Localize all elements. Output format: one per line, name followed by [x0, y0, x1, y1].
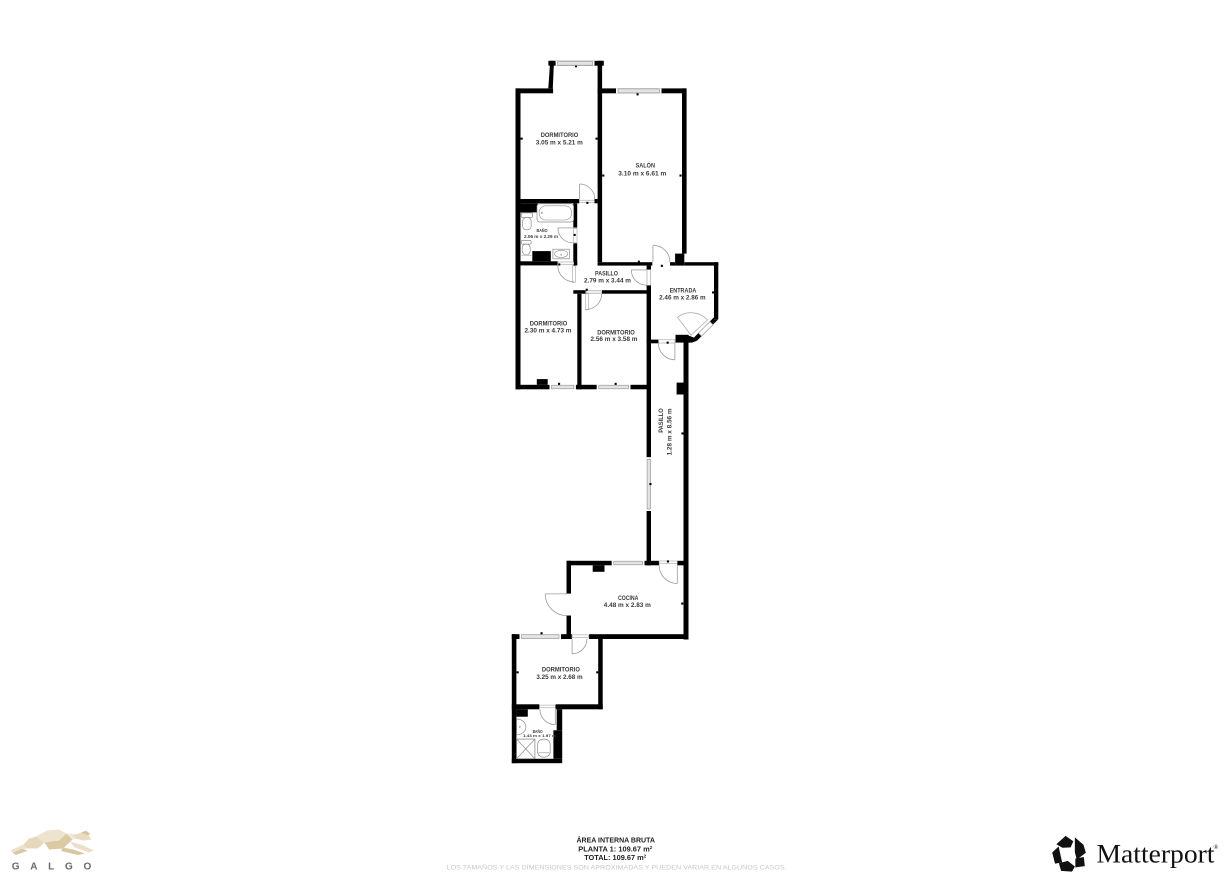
svg-text:1.43 m x 1.97 m: 1.43 m x 1.97 m	[523, 733, 556, 738]
svg-text:TOTAL: 109.67 m2: TOTAL: 109.67 m2	[584, 853, 646, 862]
svg-text:PASILLO: PASILLO	[658, 408, 665, 433]
svg-text:3.05 m x 5.21 m: 3.05 m x 5.21 m	[536, 139, 583, 146]
svg-text:2.56 m x 3.58 m: 2.56 m x 3.58 m	[591, 336, 638, 343]
svg-text:Matterport: Matterport	[1097, 839, 1216, 869]
svg-text:ENTRADA: ENTRADA	[670, 288, 697, 295]
svg-text:LOS TAMAÑOS Y LAS DIMENSIONES: LOS TAMAÑOS Y LAS DIMENSIONES SON APROXI…	[447, 862, 787, 871]
svg-text:DORMITORIO: DORMITORIO	[542, 667, 580, 674]
svg-text:2.06 m x 2.29 m: 2.06 m x 2.29 m	[524, 234, 558, 239]
svg-text:2.30 m x 4.73 m: 2.30 m x 4.73 m	[525, 328, 572, 335]
svg-text:2.79 m x 3.44 m: 2.79 m x 3.44 m	[584, 278, 631, 285]
svg-text:4.48 m x 2.83 m: 4.48 m x 2.83 m	[604, 602, 651, 609]
svg-text:SALÓN: SALÓN	[636, 161, 656, 170]
svg-text:3.25 m x 2.68 m: 3.25 m x 2.68 m	[536, 674, 583, 681]
svg-text:BAÑO: BAÑO	[537, 227, 548, 233]
svg-text:1.28 m x 8.56 m: 1.28 m x 8.56 m	[666, 408, 673, 455]
svg-text:PASILLO: PASILLO	[595, 271, 618, 278]
svg-text:COCINA: COCINA	[618, 595, 639, 602]
svg-text:3.10 m x 6.61 m: 3.10 m x 6.61 m	[618, 170, 666, 177]
svg-text:ÁREA INTERNA BRUTA: ÁREA INTERNA BRUTA	[576, 836, 655, 845]
svg-text:2.46 m x 2.86 m: 2.46 m x 2.86 m	[659, 295, 706, 302]
svg-text:®: ®	[1214, 844, 1219, 851]
svg-text:DORMITORIO: DORMITORIO	[541, 132, 579, 139]
